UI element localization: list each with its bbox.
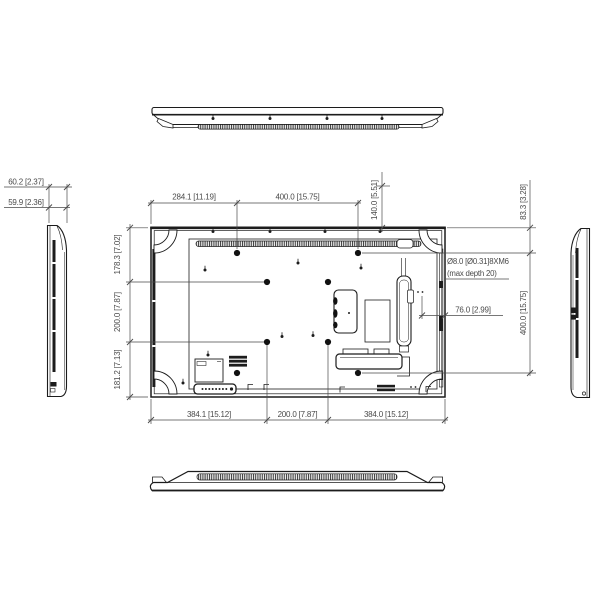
label-plate: [195, 359, 223, 382]
dim-label-140: 140.0 [5.51]: [370, 180, 379, 220]
dim-label-left-mid: 200.0 [7.87]: [113, 292, 122, 332]
connector-box: [333, 290, 357, 333]
side-connector: [572, 308, 577, 314]
bottom-view: [150, 472, 444, 491]
bottom-vent-grille: [197, 474, 397, 480]
side-vent-strip: [576, 248, 579, 358]
dim-label-side-depth-inner: 59.9 [2.36]: [8, 198, 44, 207]
left-side-view: [48, 226, 67, 397]
dim-label-left-bottom: 181.2 [7.13]: [113, 350, 122, 390]
rear-vent-grille: [196, 241, 421, 247]
dim-label-bottom-right: 384.0 [15.12]: [364, 410, 408, 419]
dim-label-bottom-mid: 200.0 [7.87]: [278, 410, 318, 419]
dim-label-83: 83.3 [3.28]: [519, 184, 528, 220]
dim-label-bottom-left: 384.1 [15.12]: [187, 410, 231, 419]
side-vent-strip: [53, 240, 56, 372]
dim-label-top-left: 284.1 [11.19]: [172, 193, 216, 202]
handle-bracket: [397, 276, 414, 352]
left-edge-vent: [152, 249, 155, 387]
side-connector: [51, 382, 57, 387]
dim-label-top-vesa: 400.0 [15.75]: [275, 193, 319, 202]
vesa-note-line1: Ø8.0 [Ø0.31]8XM6: [447, 257, 509, 266]
dim-label-right-vesa: 400.0 [15.75]: [519, 291, 528, 335]
dim-label-side-depth-outer: 60.2 [2.37]: [8, 178, 44, 187]
terminal-strip: [194, 384, 236, 394]
top-view: [152, 108, 443, 130]
vesa-screw-note: Ø8.0 [Ø0.31]8XM6 (max depth 20): [446, 257, 509, 279]
top-vent-grille: [198, 125, 399, 130]
right-side-view: [571, 229, 590, 398]
technical-drawing: 60.2 [2.37] 59.9 [2.36] 284.1 [11.19] 40…: [0, 0, 600, 600]
dim-side-depth: 60.2 [2.37] 59.9 [2.36]: [4, 178, 72, 224]
dim-140: 140.0 [5.51]: [370, 172, 390, 232]
dim-label-76: 76.0 [2.99]: [455, 306, 491, 315]
vent-slots-left: [229, 356, 247, 367]
drawing-canvas: 60.2 [2.37] 59.9 [2.36] 284.1 [11.19] 40…: [0, 0, 600, 600]
vesa-note-line2: (max depth 20): [447, 269, 497, 278]
dim-label-left-top: 178.3 [7.02]: [113, 235, 122, 275]
